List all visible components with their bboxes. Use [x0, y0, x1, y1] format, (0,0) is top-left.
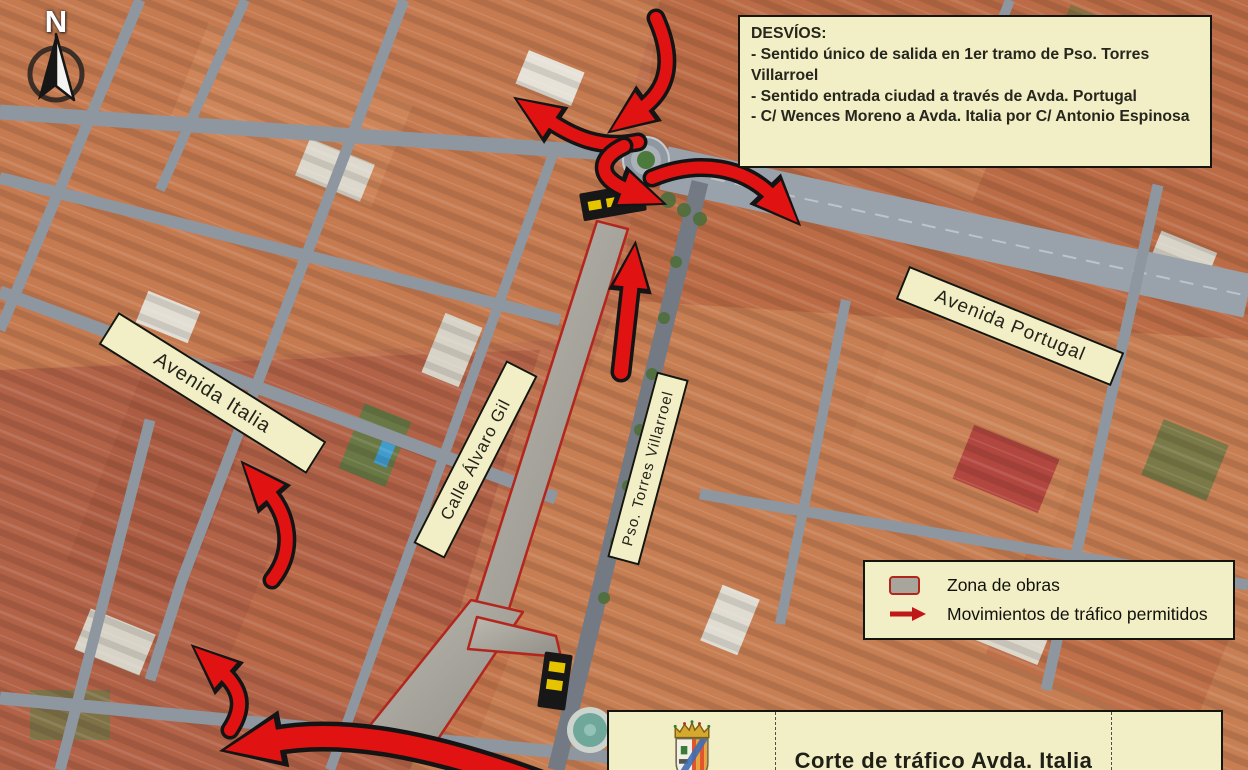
detour-item: - Sentido entrada ciudad a través de Avd…	[751, 87, 1199, 108]
compass-rose-icon	[10, 30, 102, 114]
legend-item-permitted-movements: Movimientos de tráfico permitidos	[889, 604, 1233, 625]
footer-title: Corte de tráfico Avda. Italia	[775, 712, 1112, 770]
detour-item: - C/ Wences Moreno a Avda. Italia por C/…	[751, 107, 1199, 128]
red-arrow-icon	[889, 607, 927, 621]
north-compass: N	[10, 4, 102, 114]
salamanca-coat-of-arms-icon	[664, 718, 720, 770]
detours-title: DESVÍOS:	[751, 24, 1199, 45]
legend-item-works-zone: Zona de obras	[889, 575, 1233, 596]
footer-title-panel: Corte de tráfico Avda. Italia	[607, 710, 1223, 770]
legend-label: Movimientos de tráfico permitidos	[947, 604, 1208, 625]
works-zone-swatch-icon	[889, 576, 920, 595]
footer-crest-cell	[609, 712, 775, 770]
footer-empty-cell	[1112, 712, 1221, 770]
detours-info-box: DESVÍOS: - Sentido único de salida en 1e…	[738, 15, 1212, 168]
legend-box: Zona de obras Movimientos de tráfico per…	[863, 560, 1235, 640]
legend-label: Zona de obras	[947, 575, 1060, 596]
traffic-cut-map-poster: N Avenida Italia Calle Álvaro Gil Pso. T…	[0, 0, 1248, 770]
detour-item: - Sentido único de salida en 1er tramo d…	[751, 45, 1199, 87]
arrow-torres-villarroel-up	[621, 282, 631, 372]
